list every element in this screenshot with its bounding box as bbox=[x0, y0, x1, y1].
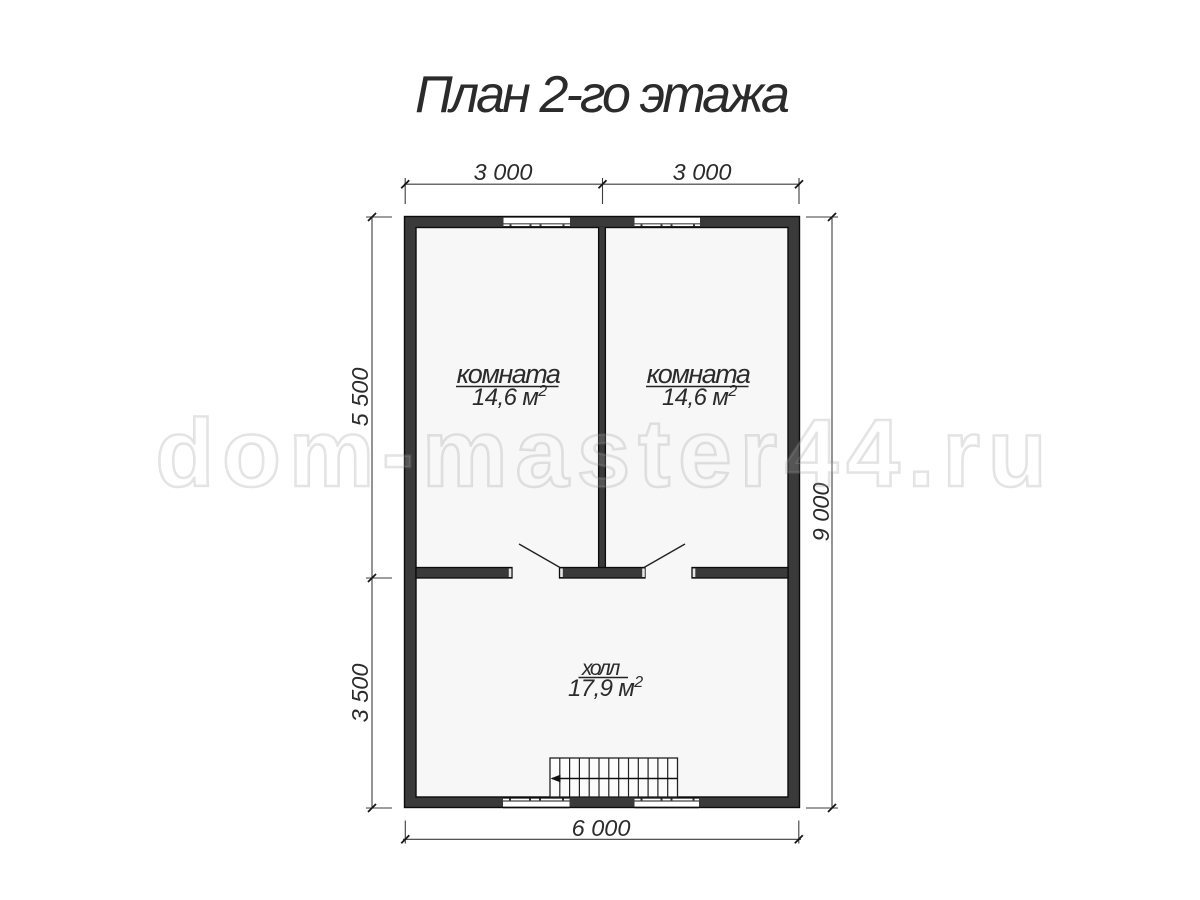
svg-text:План 2-го этажа: План 2-го этажа bbox=[415, 66, 789, 124]
svg-text:3 000: 3 000 bbox=[673, 159, 732, 185]
svg-text:dom-master44.ru: dom-master44.ru bbox=[156, 400, 1055, 507]
svg-text:3 000: 3 000 bbox=[474, 159, 533, 185]
svg-text:3 500: 3 500 bbox=[347, 664, 373, 723]
svg-text:6 000: 6 000 bbox=[572, 815, 631, 841]
